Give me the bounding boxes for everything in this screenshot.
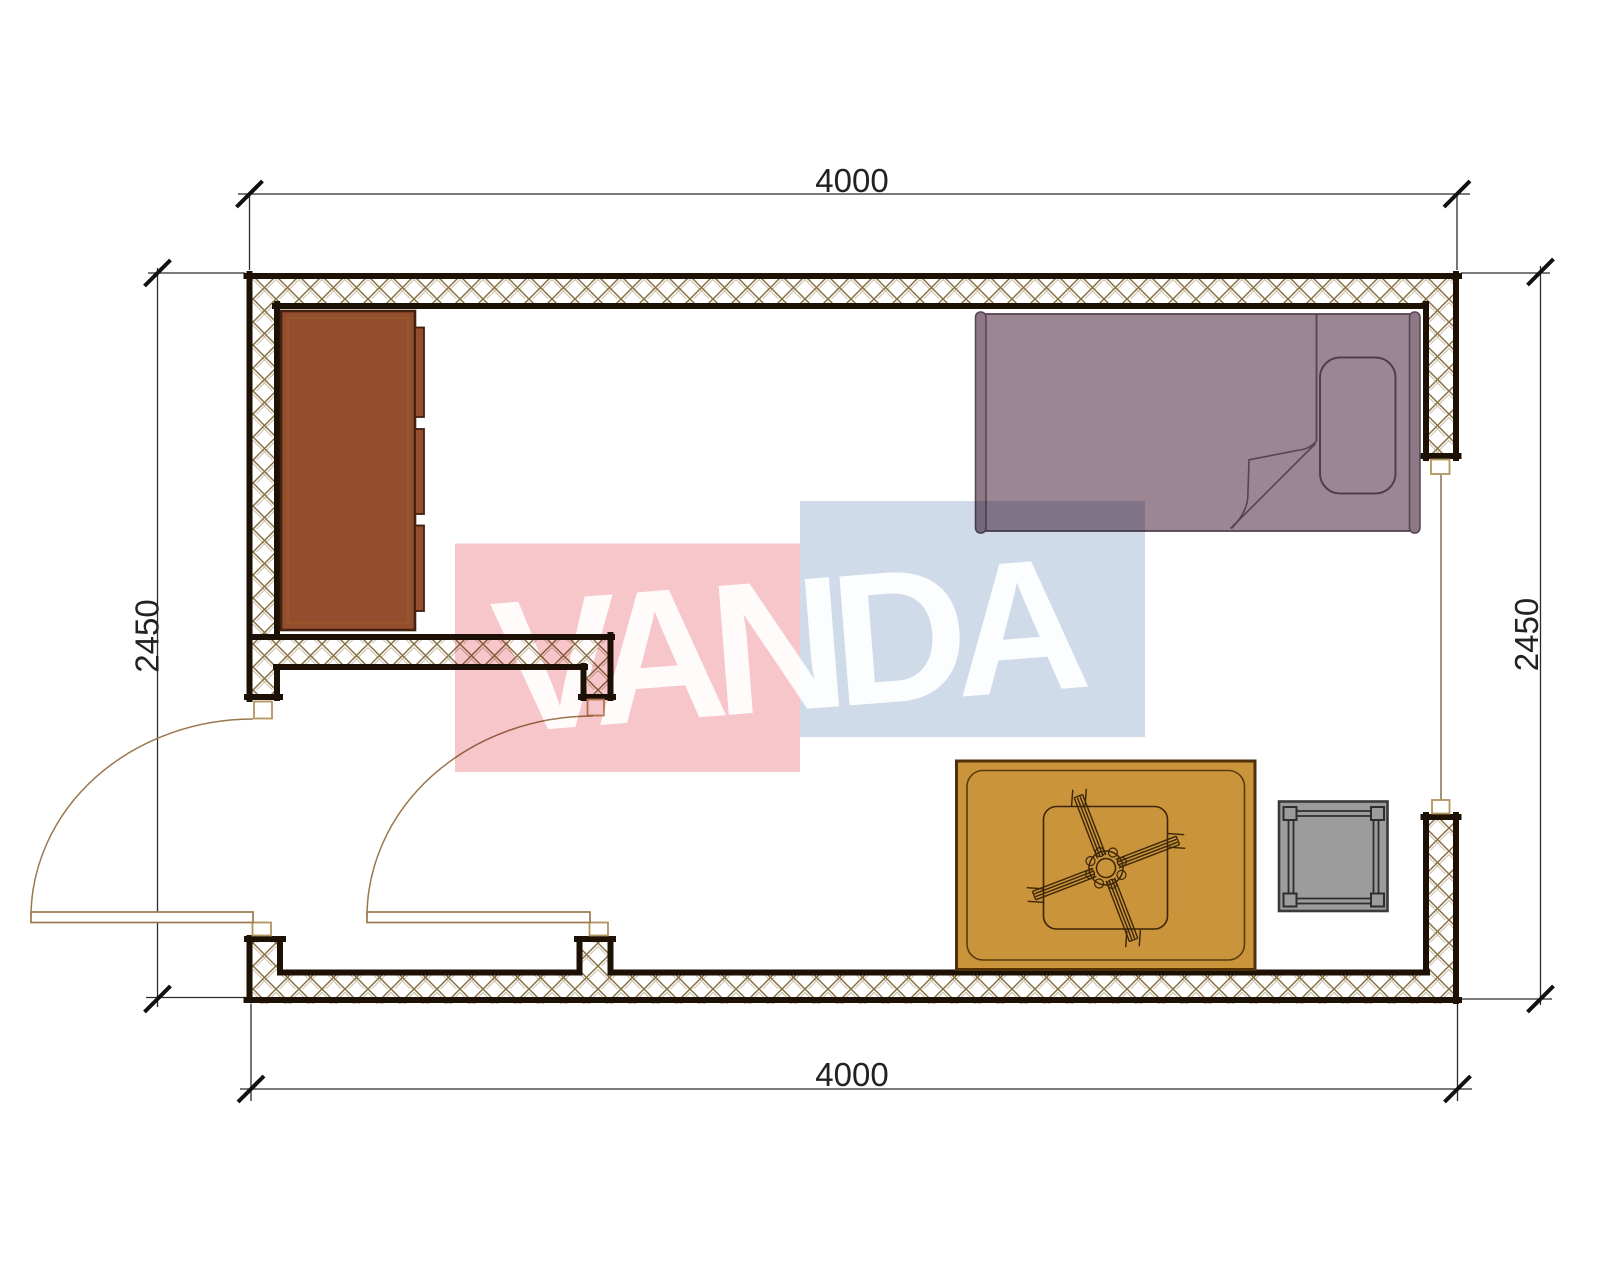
svg-text:2450: 2450 bbox=[1508, 598, 1545, 671]
svg-text:2450: 2450 bbox=[129, 599, 166, 672]
svg-text:4000: 4000 bbox=[815, 1056, 888, 1093]
svg-text:4000: 4000 bbox=[815, 162, 888, 199]
